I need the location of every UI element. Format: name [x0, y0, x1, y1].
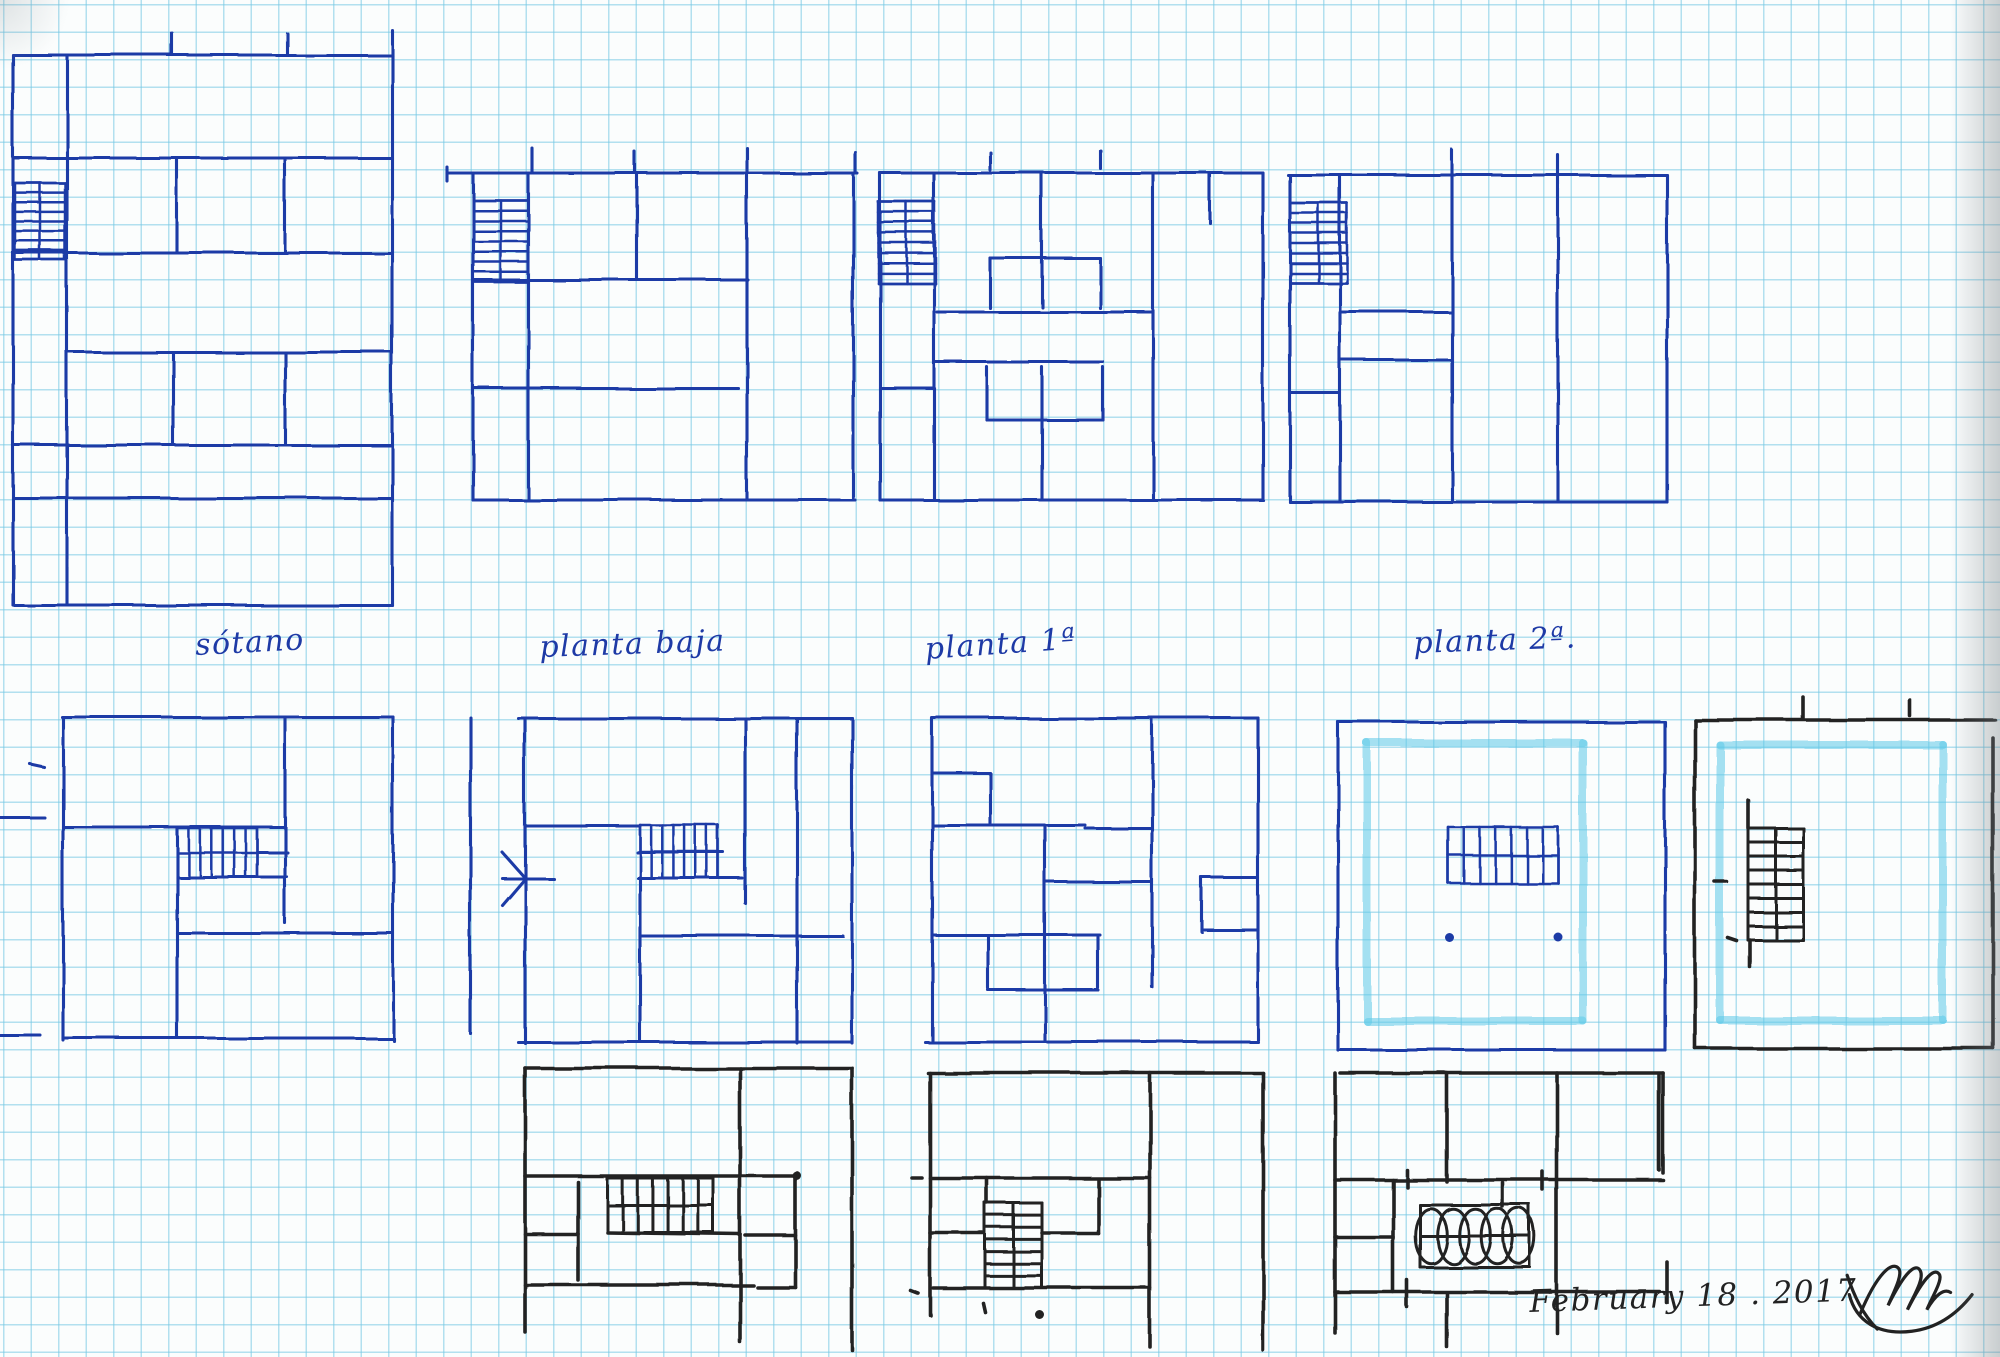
sketch-canvas	[0, 0, 2000, 1357]
graph-paper-page: sótano planta baja planta 1ª planta 2ª. …	[0, 0, 2000, 1357]
label-sotano: sótano	[194, 622, 305, 663]
signature-stroke	[1860, 1266, 1950, 1314]
plan-planta-1-upper	[878, 150, 1263, 500]
plan-sotano-upper	[13, 30, 392, 605]
plan-planta-2-lower	[1338, 722, 1665, 1050]
plan-planta-baja-upper	[447, 148, 857, 500]
plan-roof-plan	[1695, 697, 1995, 1048]
plan-planta-2-upper	[1288, 150, 1667, 502]
plan-sotano-lower	[0, 717, 393, 1040]
plan-planta-baja-lower	[470, 717, 852, 1043]
plan-planta-1-lower	[925, 718, 1258, 1042]
label-planta-2: planta 2ª.	[1413, 620, 1577, 661]
plan-black-plan-1	[525, 1068, 852, 1350]
label-planta-baja: planta baja	[539, 624, 726, 665]
signature	[1845, 1250, 1985, 1350]
plan-black-plan-2	[910, 1073, 1263, 1350]
